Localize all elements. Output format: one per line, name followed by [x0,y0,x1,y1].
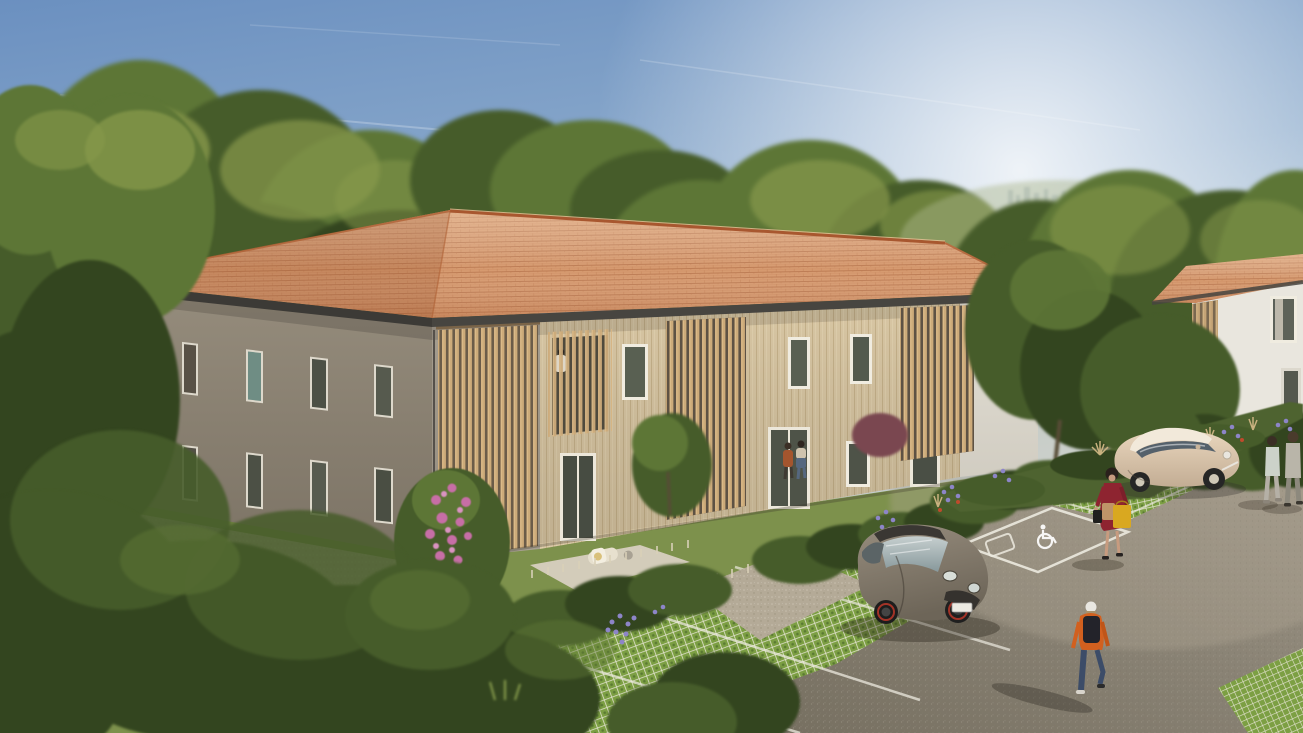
person-shadow [1072,559,1124,571]
yellow-tote-bag [1113,505,1131,528]
black-bag [1093,510,1102,523]
slat-screen-balcony [548,329,612,437]
red-shrub [852,413,908,457]
slat-screen-right [900,305,974,461]
backpack [1083,616,1100,643]
white-cap [1086,602,1097,613]
license-plate [952,603,972,612]
jeans [1081,650,1084,690]
rendering-canvas [0,0,1303,733]
